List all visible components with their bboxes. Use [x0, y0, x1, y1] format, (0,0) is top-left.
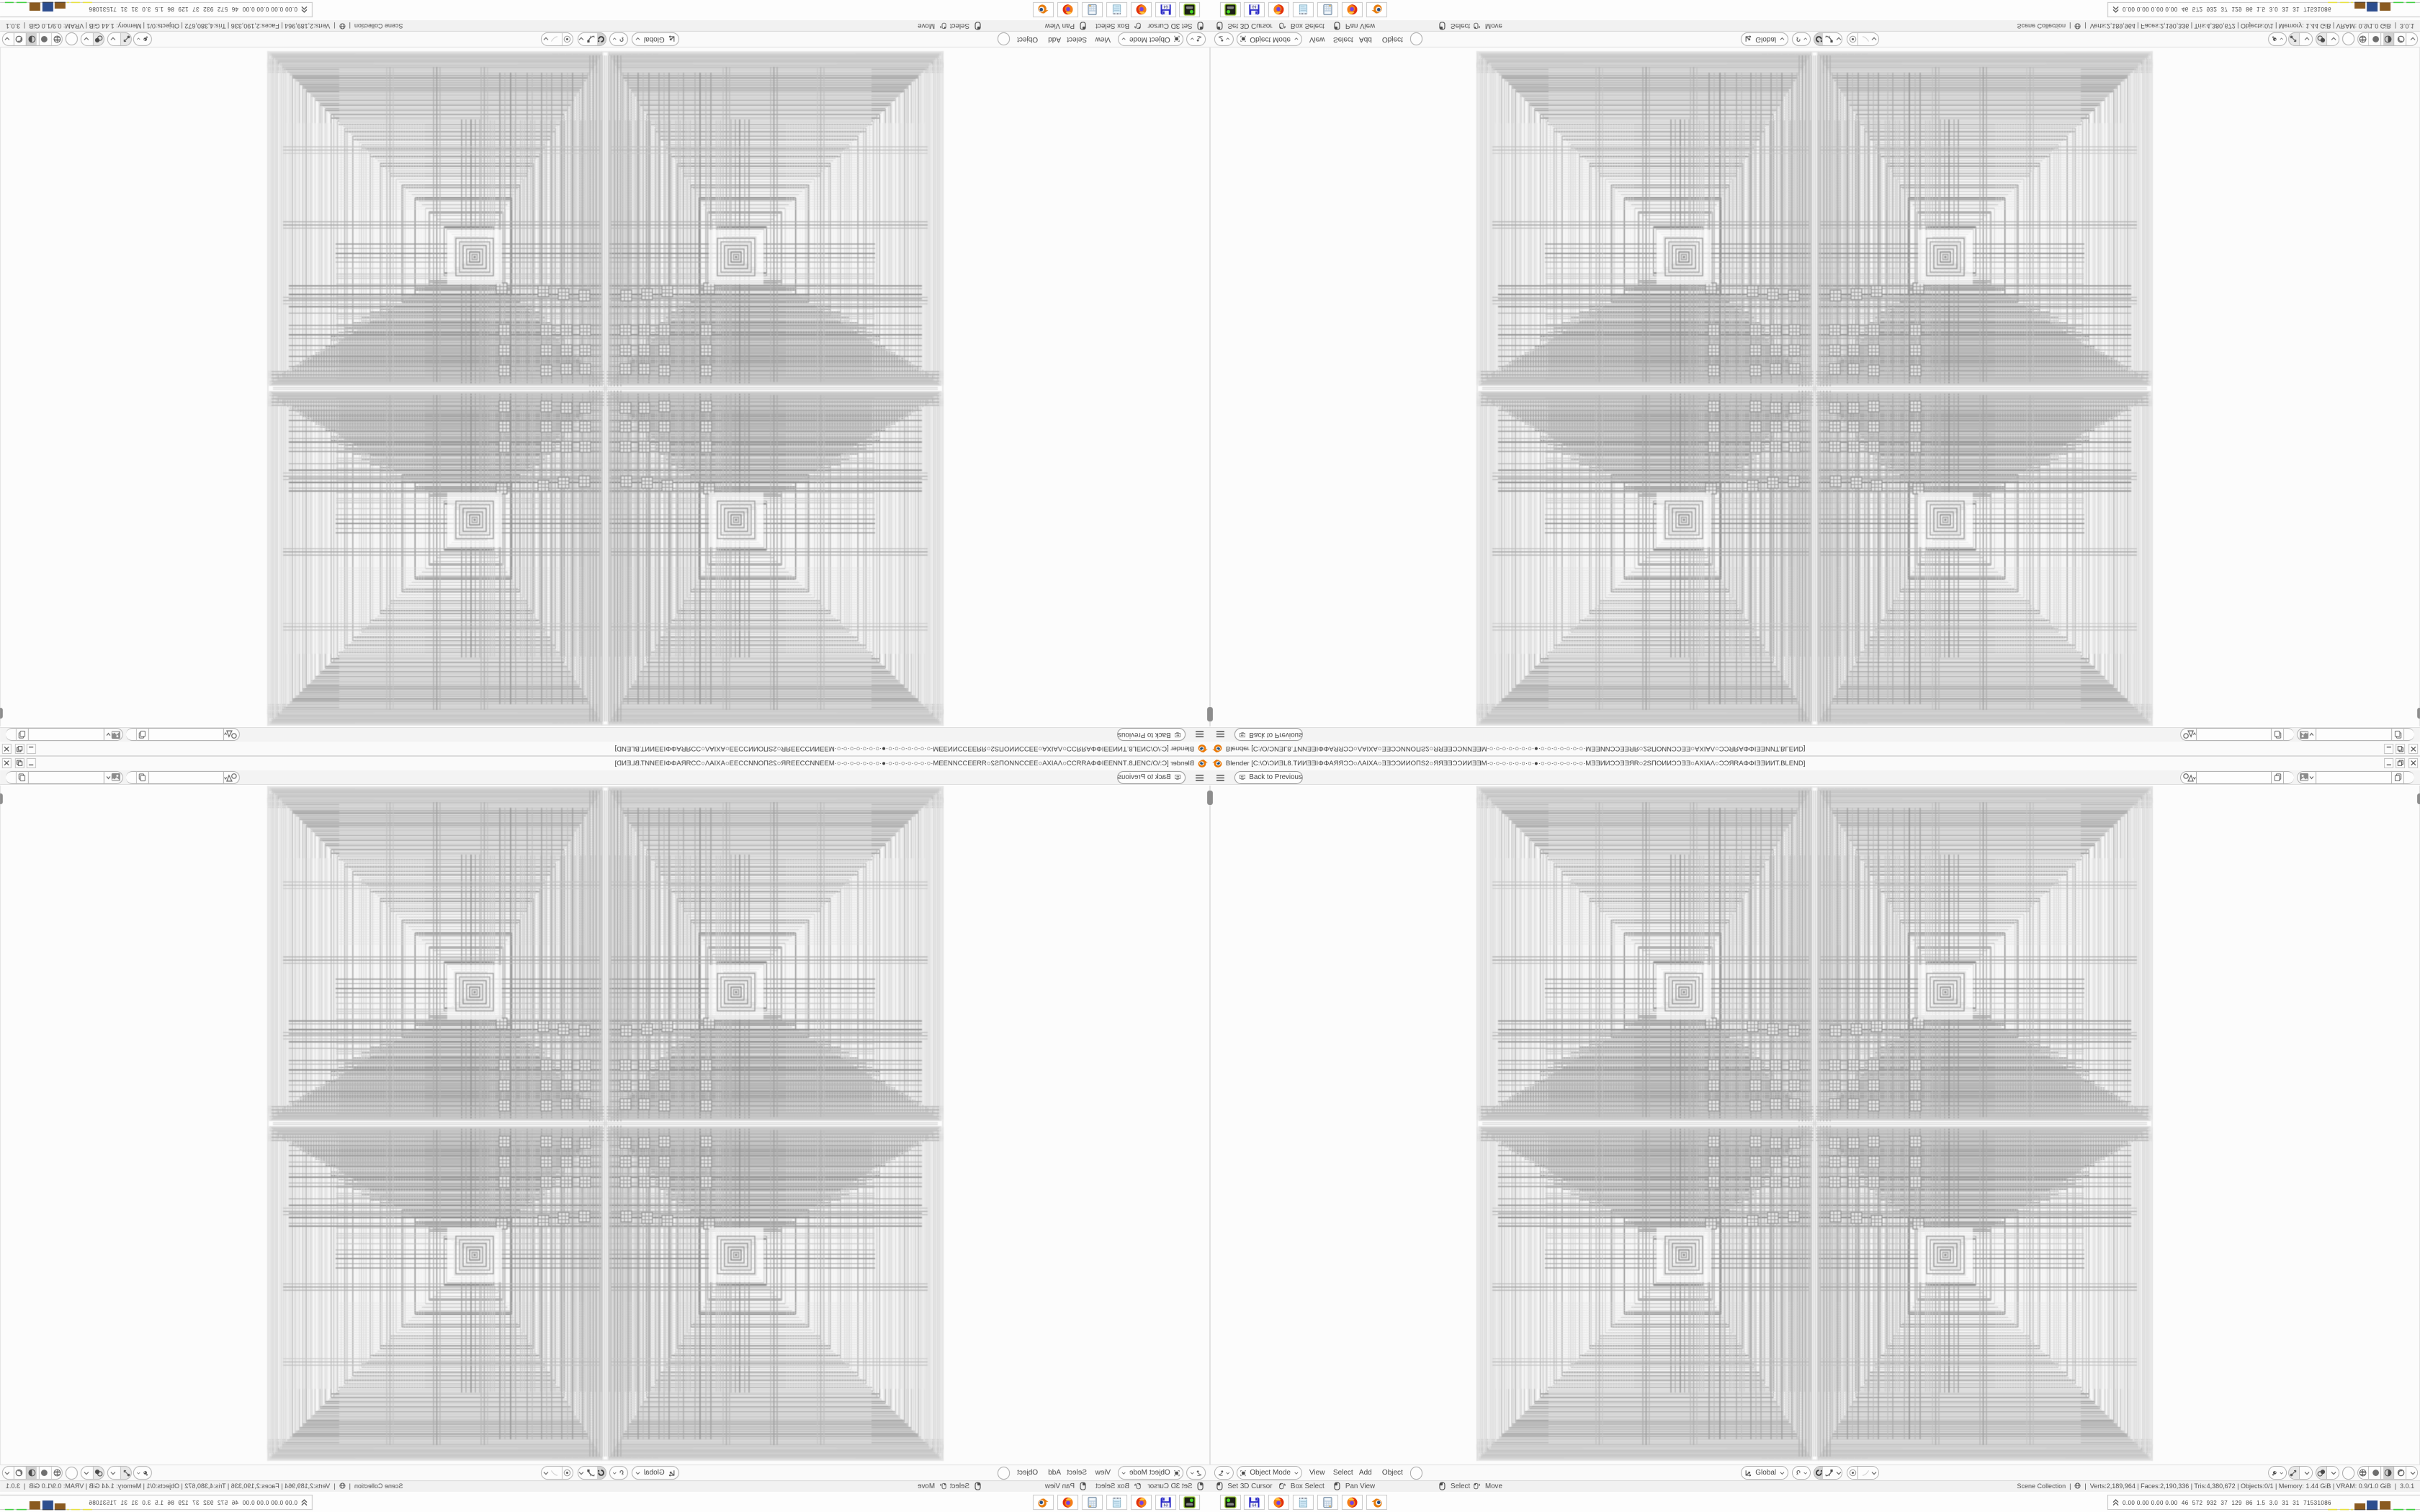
svg-text:64: 64	[1163, 1503, 1168, 1508]
svg-text:64: 64	[1252, 4, 1257, 9]
svg-text:64: 64	[1252, 1503, 1257, 1508]
svg-text:64: 64	[1163, 4, 1168, 9]
